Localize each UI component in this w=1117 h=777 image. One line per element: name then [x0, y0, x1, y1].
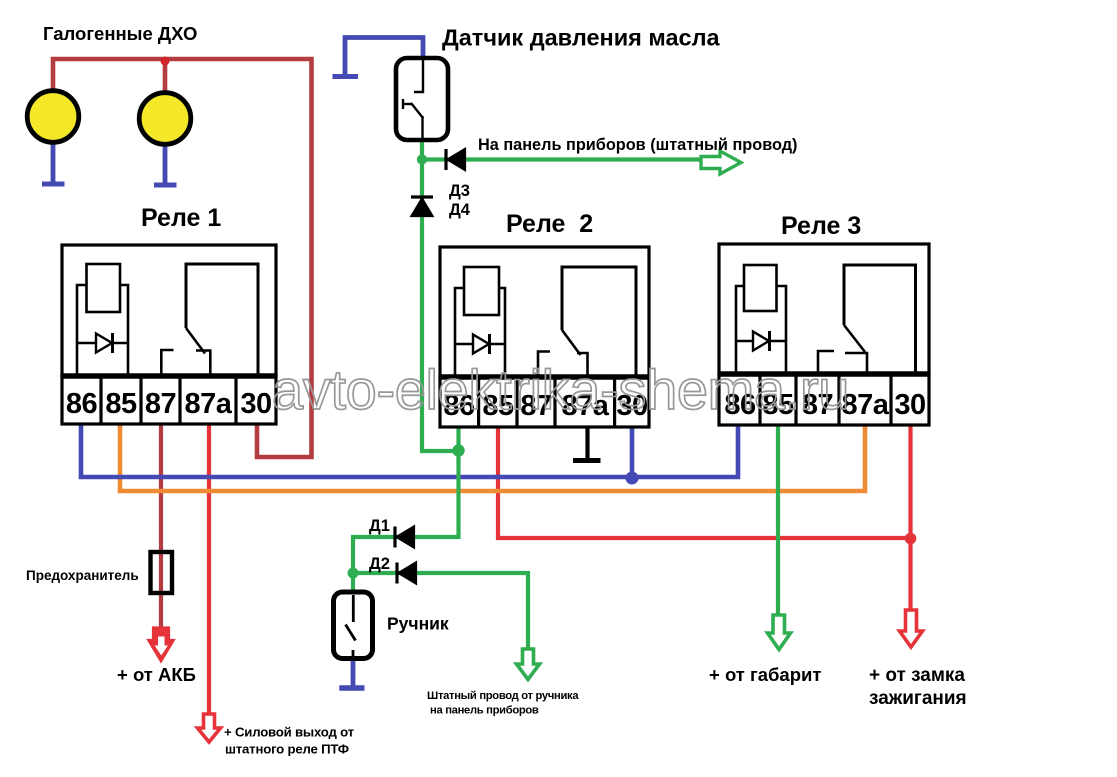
svg-text:Реле 3: Реле 3: [781, 212, 861, 240]
svg-text:Ручник: Ручник: [387, 614, 449, 634]
svg-text:+ от габарит: + от габарит: [709, 664, 821, 685]
svg-text:87a: 87a: [185, 388, 233, 420]
svg-text:на панель приборов: на панель приборов: [430, 705, 539, 717]
svg-text:30: 30: [894, 389, 925, 421]
svg-text:87: 87: [145, 388, 176, 420]
svg-text:Галогенные ДХО: Галогенные ДХО: [43, 23, 197, 44]
svg-text:Д4: Д4: [449, 201, 471, 219]
svg-text:Датчик давления масла: Датчик давления масла: [442, 25, 721, 51]
svg-text:30: 30: [240, 388, 271, 420]
svg-text:86: 86: [66, 388, 98, 420]
svg-text:Реле 2: Реле 2: [506, 210, 593, 238]
svg-text:85: 85: [105, 388, 137, 420]
svg-text:avto-elektrika-shema.ru: avto-elektrika-shema.ru: [272, 358, 849, 421]
svg-text:Реле 1: Реле 1: [141, 204, 221, 232]
svg-text:Д2: Д2: [369, 555, 390, 573]
svg-text:Д1: Д1: [369, 517, 390, 535]
svg-text:зажигания: зажигания: [869, 688, 967, 709]
svg-text:Д3: Д3: [449, 182, 470, 200]
svg-text:+ от замка: + от замка: [869, 665, 965, 686]
svg-text:Штатный провод от ручника: Штатный провод от ручника: [427, 690, 579, 702]
svg-text:+ Силовой выход от: + Силовой выход от: [224, 725, 355, 740]
svg-text:На панель приборов (штатный пр: На панель приборов (штатный провод): [478, 136, 797, 154]
svg-text:+ от АКБ: + от АКБ: [117, 664, 196, 685]
svg-text:штатного реле ПТФ: штатного реле ПТФ: [225, 742, 349, 757]
svg-text:Предохранитель: Предохранитель: [26, 568, 139, 583]
